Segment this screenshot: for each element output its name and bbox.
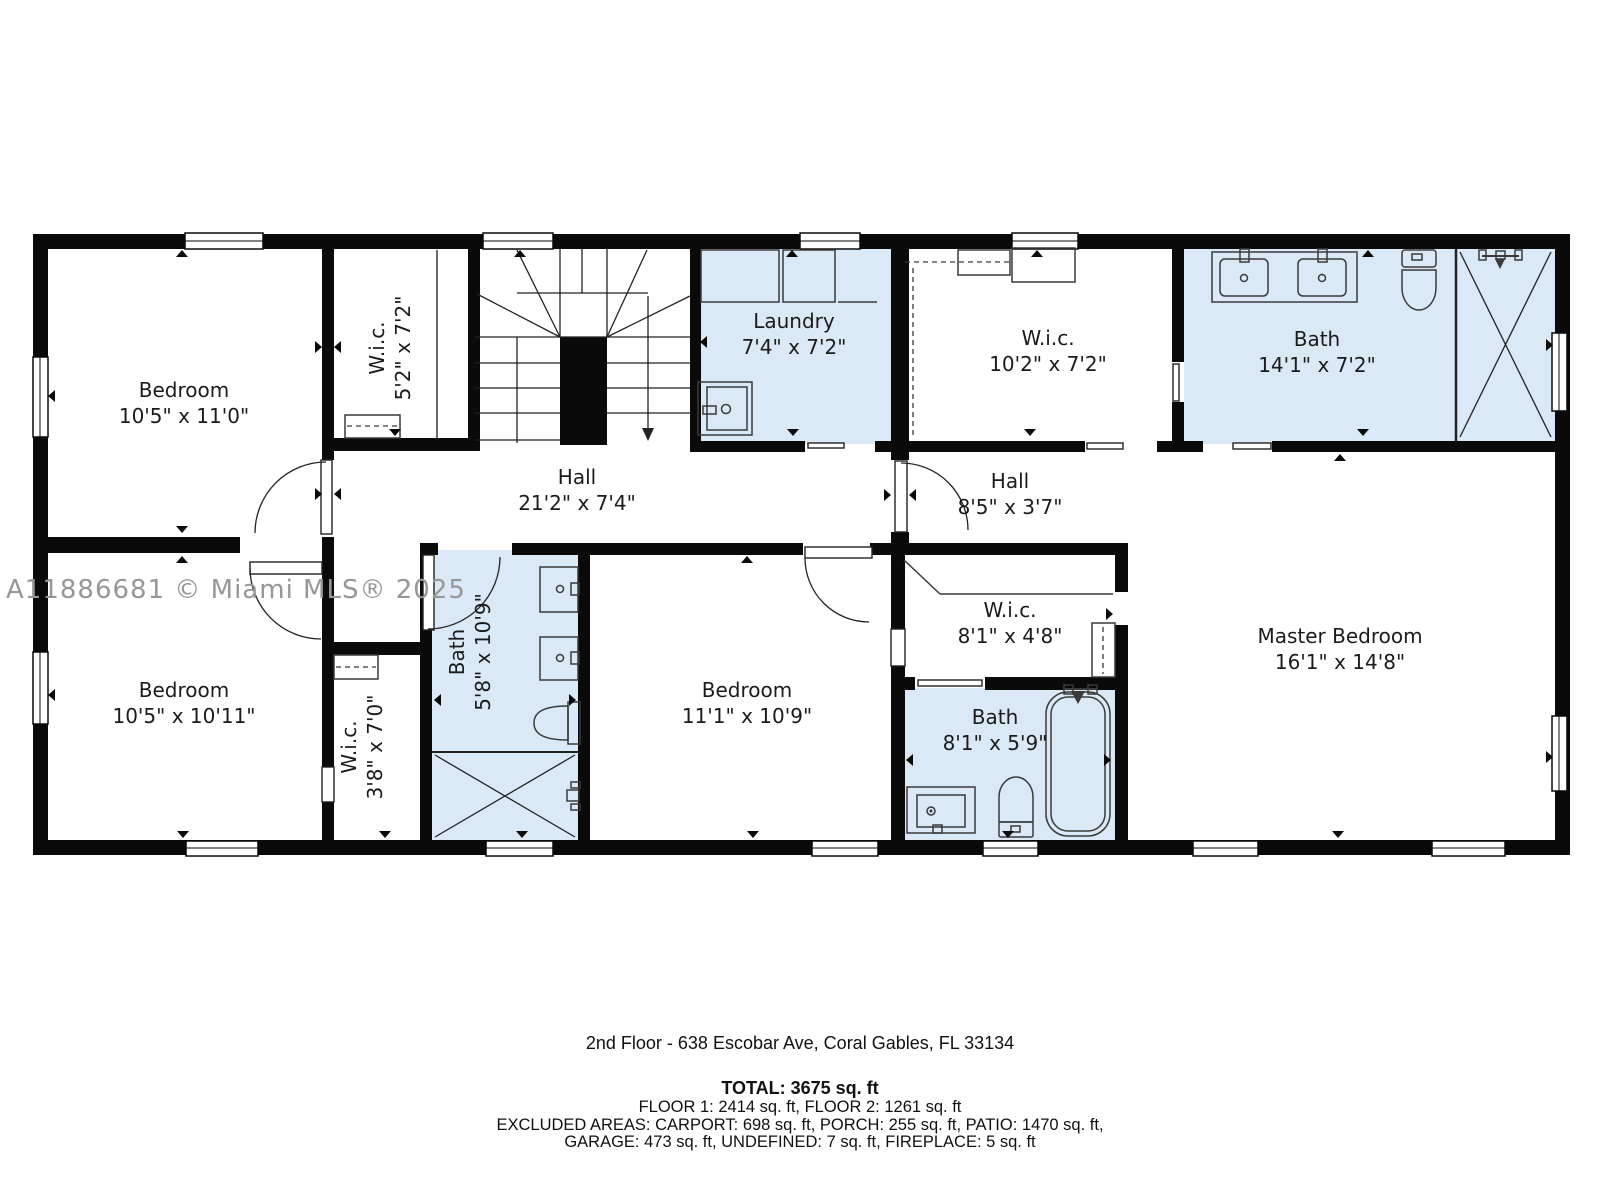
room-dims: 11'1" x 10'9" xyxy=(682,703,812,729)
window xyxy=(1012,233,1078,249)
room-dims: 16'1" x 14'8" xyxy=(1257,649,1422,675)
door-leaf-hall-master xyxy=(895,461,907,532)
room-name: W.i.c. xyxy=(336,695,362,800)
window xyxy=(483,233,553,249)
room-dims: 8'1" x 4'8" xyxy=(958,623,1063,649)
window xyxy=(1552,716,1567,791)
total-area: TOTAL: 3675 sq. ft xyxy=(0,1078,1600,1099)
room-dims: 5'2" x 7'2" xyxy=(390,296,416,401)
pocket-door-bath-top-right xyxy=(1233,443,1271,449)
sliding-door-laundry xyxy=(808,443,844,448)
room-label-wic-bottom-left: W.i.c. 3'8" x 7'0" xyxy=(336,695,388,800)
room-label-wic-top-left: W.i.c. 5'2" x 7'2" xyxy=(364,296,416,401)
address-line: 2nd Floor - 638 Escobar Ave, Coral Gable… xyxy=(0,1033,1600,1054)
room-name: W.i.c. xyxy=(364,296,390,401)
stairs-down-arrowhead xyxy=(642,428,654,441)
pocket-door-wic-bath-divider xyxy=(1173,364,1179,401)
pocket-door-wic-top-center xyxy=(1087,443,1123,449)
window xyxy=(185,233,263,249)
room-label-bath-master: Bath 8'1" x 5'9" xyxy=(943,704,1048,756)
room-dims: 3'8" x 7'0" xyxy=(362,695,388,800)
room-label-hall-main: Hall 21'2" x 7'4" xyxy=(518,464,636,516)
door-slab-wic-bottom-left xyxy=(322,767,334,802)
room-name: Master Bedroom xyxy=(1257,623,1422,649)
room-name: Bath xyxy=(943,704,1048,730)
room-name: W.i.c. xyxy=(958,597,1063,623)
room-label-wic-master: W.i.c. 8'1" x 4'8" xyxy=(958,597,1063,649)
window xyxy=(800,233,860,249)
room-name: Bedroom xyxy=(682,677,812,703)
room-dims: 21'2" x 7'4" xyxy=(518,490,636,516)
pocket-door-bath-master xyxy=(918,680,982,686)
room-dims: 8'1" x 5'9" xyxy=(943,730,1048,756)
room-dims: 5'8" x 10'9" xyxy=(470,593,496,711)
floor-plan-page: Bedroom 10'5" x 11'0" W.i.c. 5'2" x 7'2"… xyxy=(0,0,1600,1200)
room-label-bedroom-bottom-left: Bedroom 10'5" x 10'11" xyxy=(112,677,255,729)
window xyxy=(486,841,553,856)
room-dims: 7'4" x 7'2" xyxy=(742,334,847,360)
window xyxy=(1193,841,1258,856)
room-name: Bedroom xyxy=(119,377,249,403)
window xyxy=(33,652,48,724)
room-label-bedroom-middle: Bedroom 11'1" x 10'9" xyxy=(682,677,812,729)
room-name: Hall xyxy=(958,468,1063,494)
room-label-bath-middle: Bath 5'8" x 10'9" xyxy=(444,593,496,711)
room-name: Bath xyxy=(1258,326,1376,352)
room-name: Bath xyxy=(444,593,470,711)
room-label-master-bedroom: Master Bedroom 16'1" x 14'8" xyxy=(1257,623,1422,675)
door-leaf-bedroom-top-left xyxy=(321,460,332,534)
room-dims: 14'1" x 7'2" xyxy=(1258,352,1376,378)
door-leaf-bedroom-bottom-left xyxy=(250,562,322,574)
room-name: Bedroom xyxy=(112,677,255,703)
door-slab-bedroom-middle-wall xyxy=(891,629,905,666)
room-name: Laundry xyxy=(742,308,847,334)
window xyxy=(1432,841,1505,856)
floor-areas: FLOOR 1: 2414 sq. ft, FLOOR 2: 1261 sq. … xyxy=(0,1099,1600,1117)
room-label-hall-master: Hall 8'5" x 3'7" xyxy=(958,468,1063,520)
footer: 2nd Floor - 638 Escobar Ave, Coral Gable… xyxy=(0,1033,1600,1152)
excluded-areas-line1: EXCLUDED AREAS: CARPORT: 698 sq. ft, POR… xyxy=(0,1117,1600,1135)
room-dims: 10'5" x 10'11" xyxy=(112,703,255,729)
room-name: W.i.c. xyxy=(989,325,1107,351)
room-dims: 10'2" x 7'2" xyxy=(989,351,1107,377)
room-label-bedroom-top-left: Bedroom 10'5" x 11'0" xyxy=(119,377,249,429)
door-leaf-bedroom-middle xyxy=(805,547,872,558)
room-label-wic-top-center: W.i.c. 10'2" x 7'2" xyxy=(989,325,1107,377)
window xyxy=(1552,333,1567,411)
window xyxy=(812,841,878,856)
window xyxy=(983,841,1038,856)
room-label-laundry: Laundry 7'4" x 7'2" xyxy=(742,308,847,360)
excluded-areas-line2: GARAGE: 473 sq. ft, UNDEFINED: 7 sq. ft,… xyxy=(0,1134,1600,1152)
room-name: Hall xyxy=(518,464,636,490)
room-dims: 8'5" x 3'7" xyxy=(958,494,1063,520)
window xyxy=(186,841,258,856)
room-label-bath-top-right: Bath 14'1" x 7'2" xyxy=(1258,326,1376,378)
window xyxy=(33,357,48,437)
room-dims: 10'5" x 11'0" xyxy=(119,403,249,429)
stair-void xyxy=(560,337,607,445)
mls-watermark: A11886681 © Miami MLS® 2025 xyxy=(6,575,466,605)
